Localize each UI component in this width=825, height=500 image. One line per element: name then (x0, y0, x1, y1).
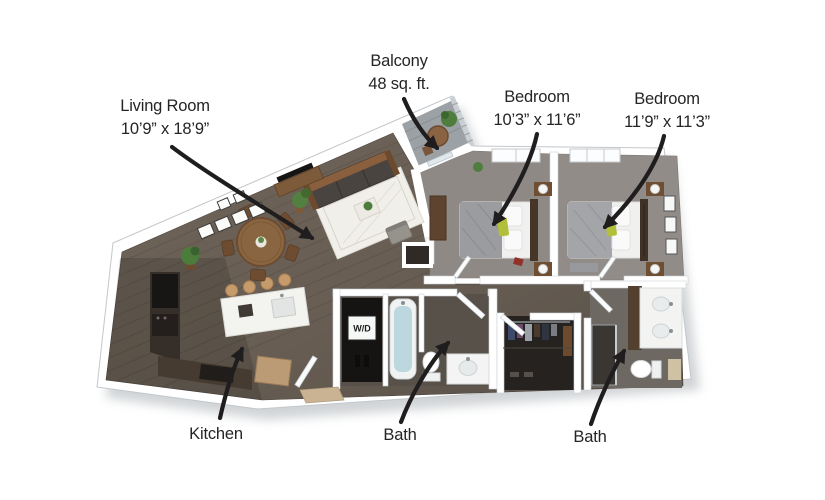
bedroom-1-label: Bedroom 10’3” x 11’6” (494, 86, 581, 132)
balcony-label: Balcony 48 sq. ft. (368, 50, 429, 96)
bedroom-2-dimensions: 11’9” x 11’3” (624, 111, 710, 134)
wardrobe (430, 196, 446, 240)
island-sink (271, 297, 295, 318)
coffee-table-plant (364, 202, 373, 211)
washer-dryer-label: W/D (353, 324, 371, 334)
bedroom-2-label: Bedroom 11’9” x 11’3” (624, 88, 710, 134)
toilet-2 (631, 361, 651, 378)
balcony-name: Balcony (368, 50, 429, 73)
bath-1: W/D (333, 289, 497, 389)
bench (570, 263, 598, 272)
kitchen-label: Kitchen (189, 423, 243, 446)
bedroom-1-name: Bedroom (494, 86, 581, 109)
wall-frames (664, 196, 677, 254)
bath-2 (584, 281, 686, 390)
floorplan-page: W/D (0, 0, 825, 500)
refrigerator (152, 274, 178, 308)
bath-1-name: Bath (383, 424, 416, 447)
bath-2-label: Bath (573, 426, 606, 449)
kitchen-name: Kitchen (189, 423, 243, 446)
living-room-label: Living Room 10’9” x 18’9” (120, 95, 210, 141)
entry-console (255, 356, 292, 386)
bath-1-label: Bath (383, 424, 416, 447)
closet (497, 313, 581, 393)
living-room-dimensions: 10’9” x 18’9” (120, 118, 210, 141)
bed-2 (568, 199, 648, 261)
bedroom-1-dimensions: 10’3” x 11’6” (494, 109, 581, 132)
bath-2-name: Bath (573, 426, 606, 449)
bed-1 (460, 199, 538, 266)
bath-mat (668, 359, 681, 380)
balcony-area: 48 sq. ft. (368, 73, 429, 96)
bedroom-2-name: Bedroom (624, 88, 710, 111)
living-room-name: Living Room (120, 95, 210, 118)
